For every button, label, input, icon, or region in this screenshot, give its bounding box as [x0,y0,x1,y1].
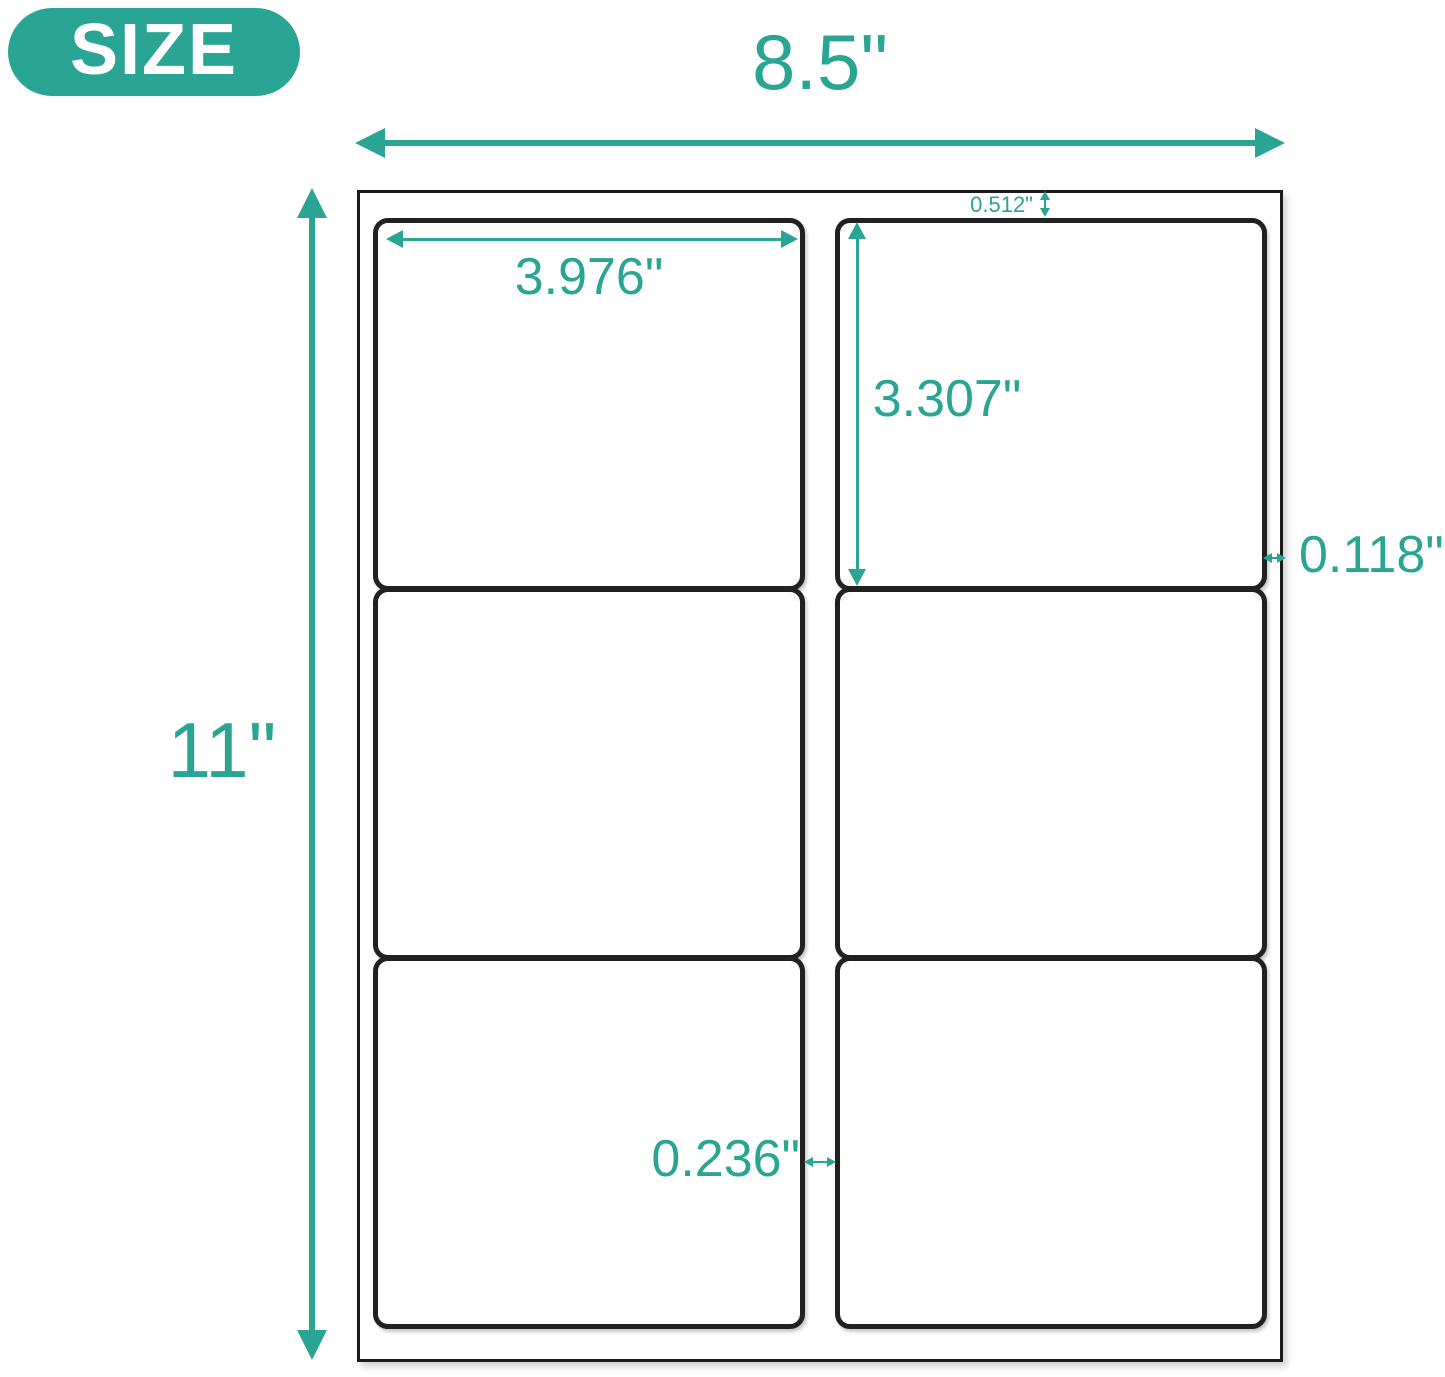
arrowhead-left-icon [804,1157,813,1167]
side-margin-value: 0.118" [1299,528,1444,583]
sheet-width-arrow [355,128,1285,158]
arrowhead-down-icon [848,569,866,586]
top-margin-value: 0.512" [933,193,1033,216]
size-badge-label: SIZE [70,14,238,90]
arrowhead-right-icon [1255,128,1285,158]
label-cell-r2c1 [373,587,805,960]
label-cell-r2c2 [835,587,1267,960]
sheet-width-value: 8.5" [745,22,895,104]
arrowhead-left-icon [386,230,403,248]
label-width-value: 3.976" [439,250,739,305]
side-margin-arrow [1263,553,1286,563]
top-margin-arrow [1040,191,1050,217]
column-gap-value: 0.236" [600,1132,800,1187]
label-cell-r3c2 [835,956,1267,1329]
arrow-line [1044,200,1047,208]
label-width-arrow [386,230,798,248]
column-gap-arrow [804,1157,836,1167]
arrowhead-up-icon [297,188,327,218]
arrow-line [403,238,781,241]
paper-sheet [357,190,1283,1362]
arrowhead-right-icon [827,1157,836,1167]
arrowhead-up-icon [848,222,866,239]
arrowhead-down-icon [297,1330,327,1360]
arrowhead-up-icon [1040,191,1050,200]
arrowhead-right-icon [1277,553,1286,563]
size-badge: SIZE [8,8,300,96]
arrowhead-left-icon [1263,553,1272,563]
arrow-line [309,218,315,1330]
label-height-value: 3.307" [797,372,1097,427]
arrow-line [813,1161,827,1164]
arrowhead-left-icon [355,128,385,158]
arrow-line [385,140,1255,146]
sheet-height-arrow [297,188,327,1360]
label-sheet-size-diagram: SIZE 8.5" 11" 0.512" 3.976" [0,0,1445,1377]
sheet-height-value: 11" [147,710,297,792]
arrowhead-down-icon [1040,208,1050,217]
arrowhead-right-icon [781,230,798,248]
